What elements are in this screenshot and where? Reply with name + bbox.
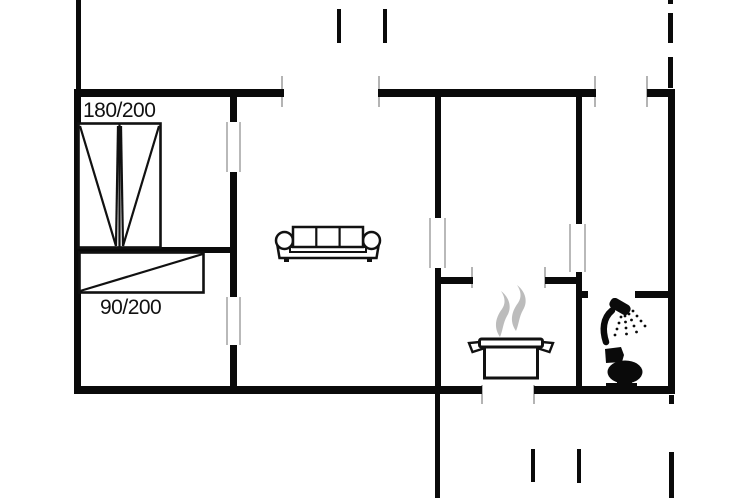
dashed-right-boundary — [668, 13, 673, 43]
wall-exterior-bottom-west — [74, 386, 482, 394]
shower-head-icon — [598, 298, 654, 348]
wall-kitchen-bath-lower — [576, 272, 582, 390]
wall-exterior-right — [668, 89, 675, 394]
single-bed-icon — [78, 251, 205, 294]
dashed-terrace-line — [577, 449, 581, 483]
door-opening-rear-room — [569, 224, 586, 272]
wall-bedrooms-living-mid — [230, 172, 237, 298]
cooking-pot-steam-icon — [466, 285, 556, 385]
wall-living-kitchen-lower — [435, 268, 441, 394]
sofa-icon — [273, 224, 383, 264]
wall-bath-top-left — [576, 291, 588, 298]
wall-kitchen-top-right — [545, 277, 581, 284]
dashed-terrace-line — [531, 449, 535, 482]
wall-stub-above-plan-left — [76, 0, 81, 91]
wall-exterior-top-center — [378, 89, 596, 97]
wall-extension-below-plan — [435, 394, 440, 498]
door-opening-bedroom1 — [226, 122, 241, 172]
floorplan-canvas: 180/200 90/200 — [0, 0, 754, 498]
double-bed-icon — [77, 122, 162, 249]
dashed-canopy-line — [383, 9, 387, 43]
single-bed-size-label: 90/200 — [100, 296, 161, 320]
dashed-right-boundary — [668, 0, 673, 4]
dashed-terrace-line — [669, 452, 674, 498]
door-opening-right-front-room — [429, 218, 446, 268]
wall-living-kitchen-upper — [435, 89, 441, 218]
wall-bedrooms-living-upper — [230, 89, 237, 122]
dashed-canopy-line — [337, 9, 341, 43]
wall-bath-top-right — [635, 291, 675, 298]
wall-exterior-top-west — [74, 89, 284, 97]
wall-kitchen-top-left — [435, 277, 473, 284]
wall-kitchen-bath-upper — [576, 89, 582, 224]
dashed-terrace-line — [669, 395, 674, 404]
double-bed-size-label: 180/200 — [83, 99, 155, 123]
toilet-icon — [600, 344, 648, 392]
dashed-right-boundary — [668, 57, 673, 88]
door-opening-bedroom2 — [226, 297, 241, 345]
wall-bedrooms-living-lower — [230, 345, 237, 394]
